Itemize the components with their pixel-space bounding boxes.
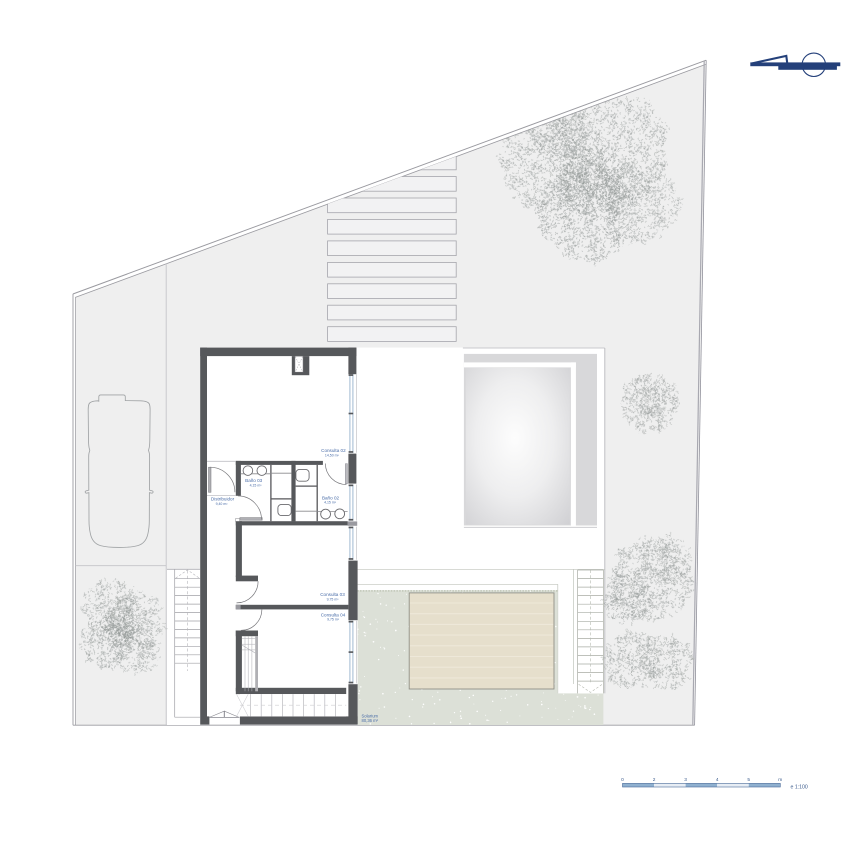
svg-text:m: m: [778, 778, 782, 783]
svg-text:Consulta 04: Consulta 04: [321, 612, 346, 617]
svg-text:Consulta 02: Consulta 02: [321, 448, 346, 453]
svg-text:14,50 m²: 14,50 m²: [325, 454, 340, 458]
svg-text:9,40 m²: 9,40 m²: [216, 502, 229, 506]
svg-text:e 1:100: e 1:100: [791, 784, 808, 790]
svg-text:4,15 m²: 4,15 m²: [250, 483, 263, 487]
svg-text:3: 3: [684, 777, 687, 783]
svg-text:9,75 m²: 9,75 m²: [327, 598, 340, 602]
svg-text:4: 4: [716, 777, 719, 783]
svg-text:9,75 m²: 9,75 m²: [327, 618, 340, 622]
svg-text:2: 2: [653, 777, 656, 783]
svg-text:Consulta 03: Consulta 03: [320, 592, 345, 597]
svg-text:4,15 m²: 4,15 m²: [324, 501, 337, 505]
svg-text:Baño 02: Baño 02: [322, 495, 340, 500]
svg-text:80,36 m²: 80,36 m²: [362, 718, 379, 723]
svg-text:0: 0: [621, 777, 624, 783]
svg-text:Distribuidor: Distribuidor: [211, 497, 235, 502]
svg-text:5: 5: [747, 777, 750, 783]
svg-text:Baño 03: Baño 03: [245, 478, 263, 483]
